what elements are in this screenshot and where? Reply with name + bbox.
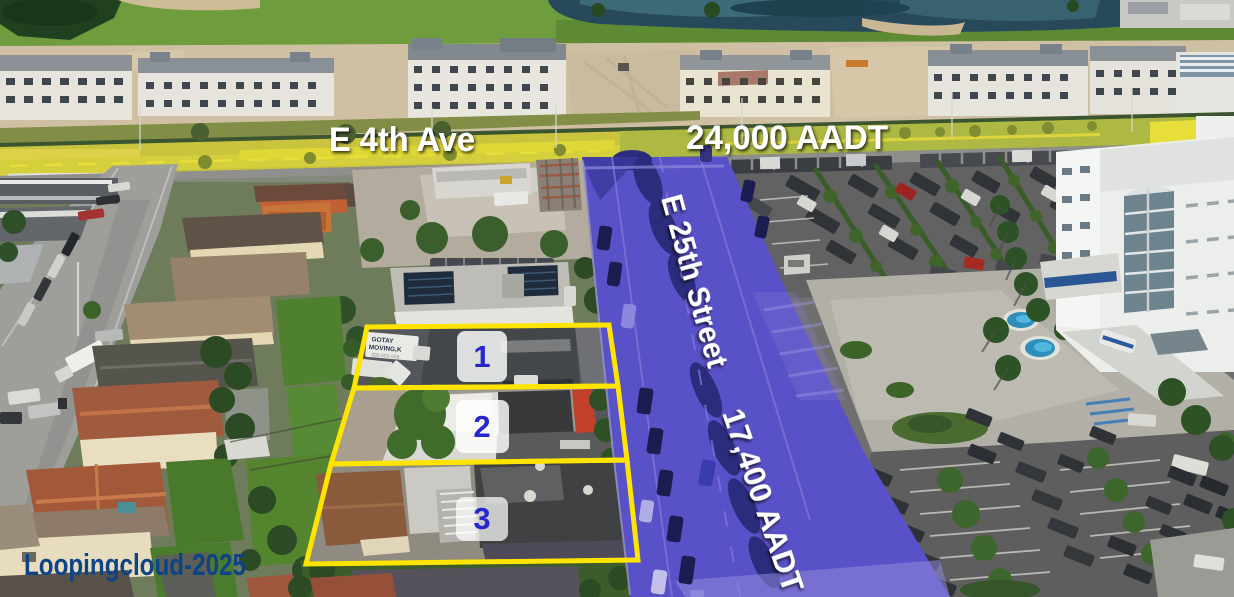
svg-text:24,000 AADT: 24,000 AADT (686, 119, 888, 157)
svg-text:3: 3 (473, 501, 490, 536)
svg-text:2: 2 (473, 409, 490, 444)
svg-text:Loopingcloud-2025: Loopingcloud-2025 (24, 547, 246, 582)
svg-text:E 4th Ave: E 4th Ave (329, 121, 475, 159)
svg-text:1: 1 (473, 339, 490, 374)
